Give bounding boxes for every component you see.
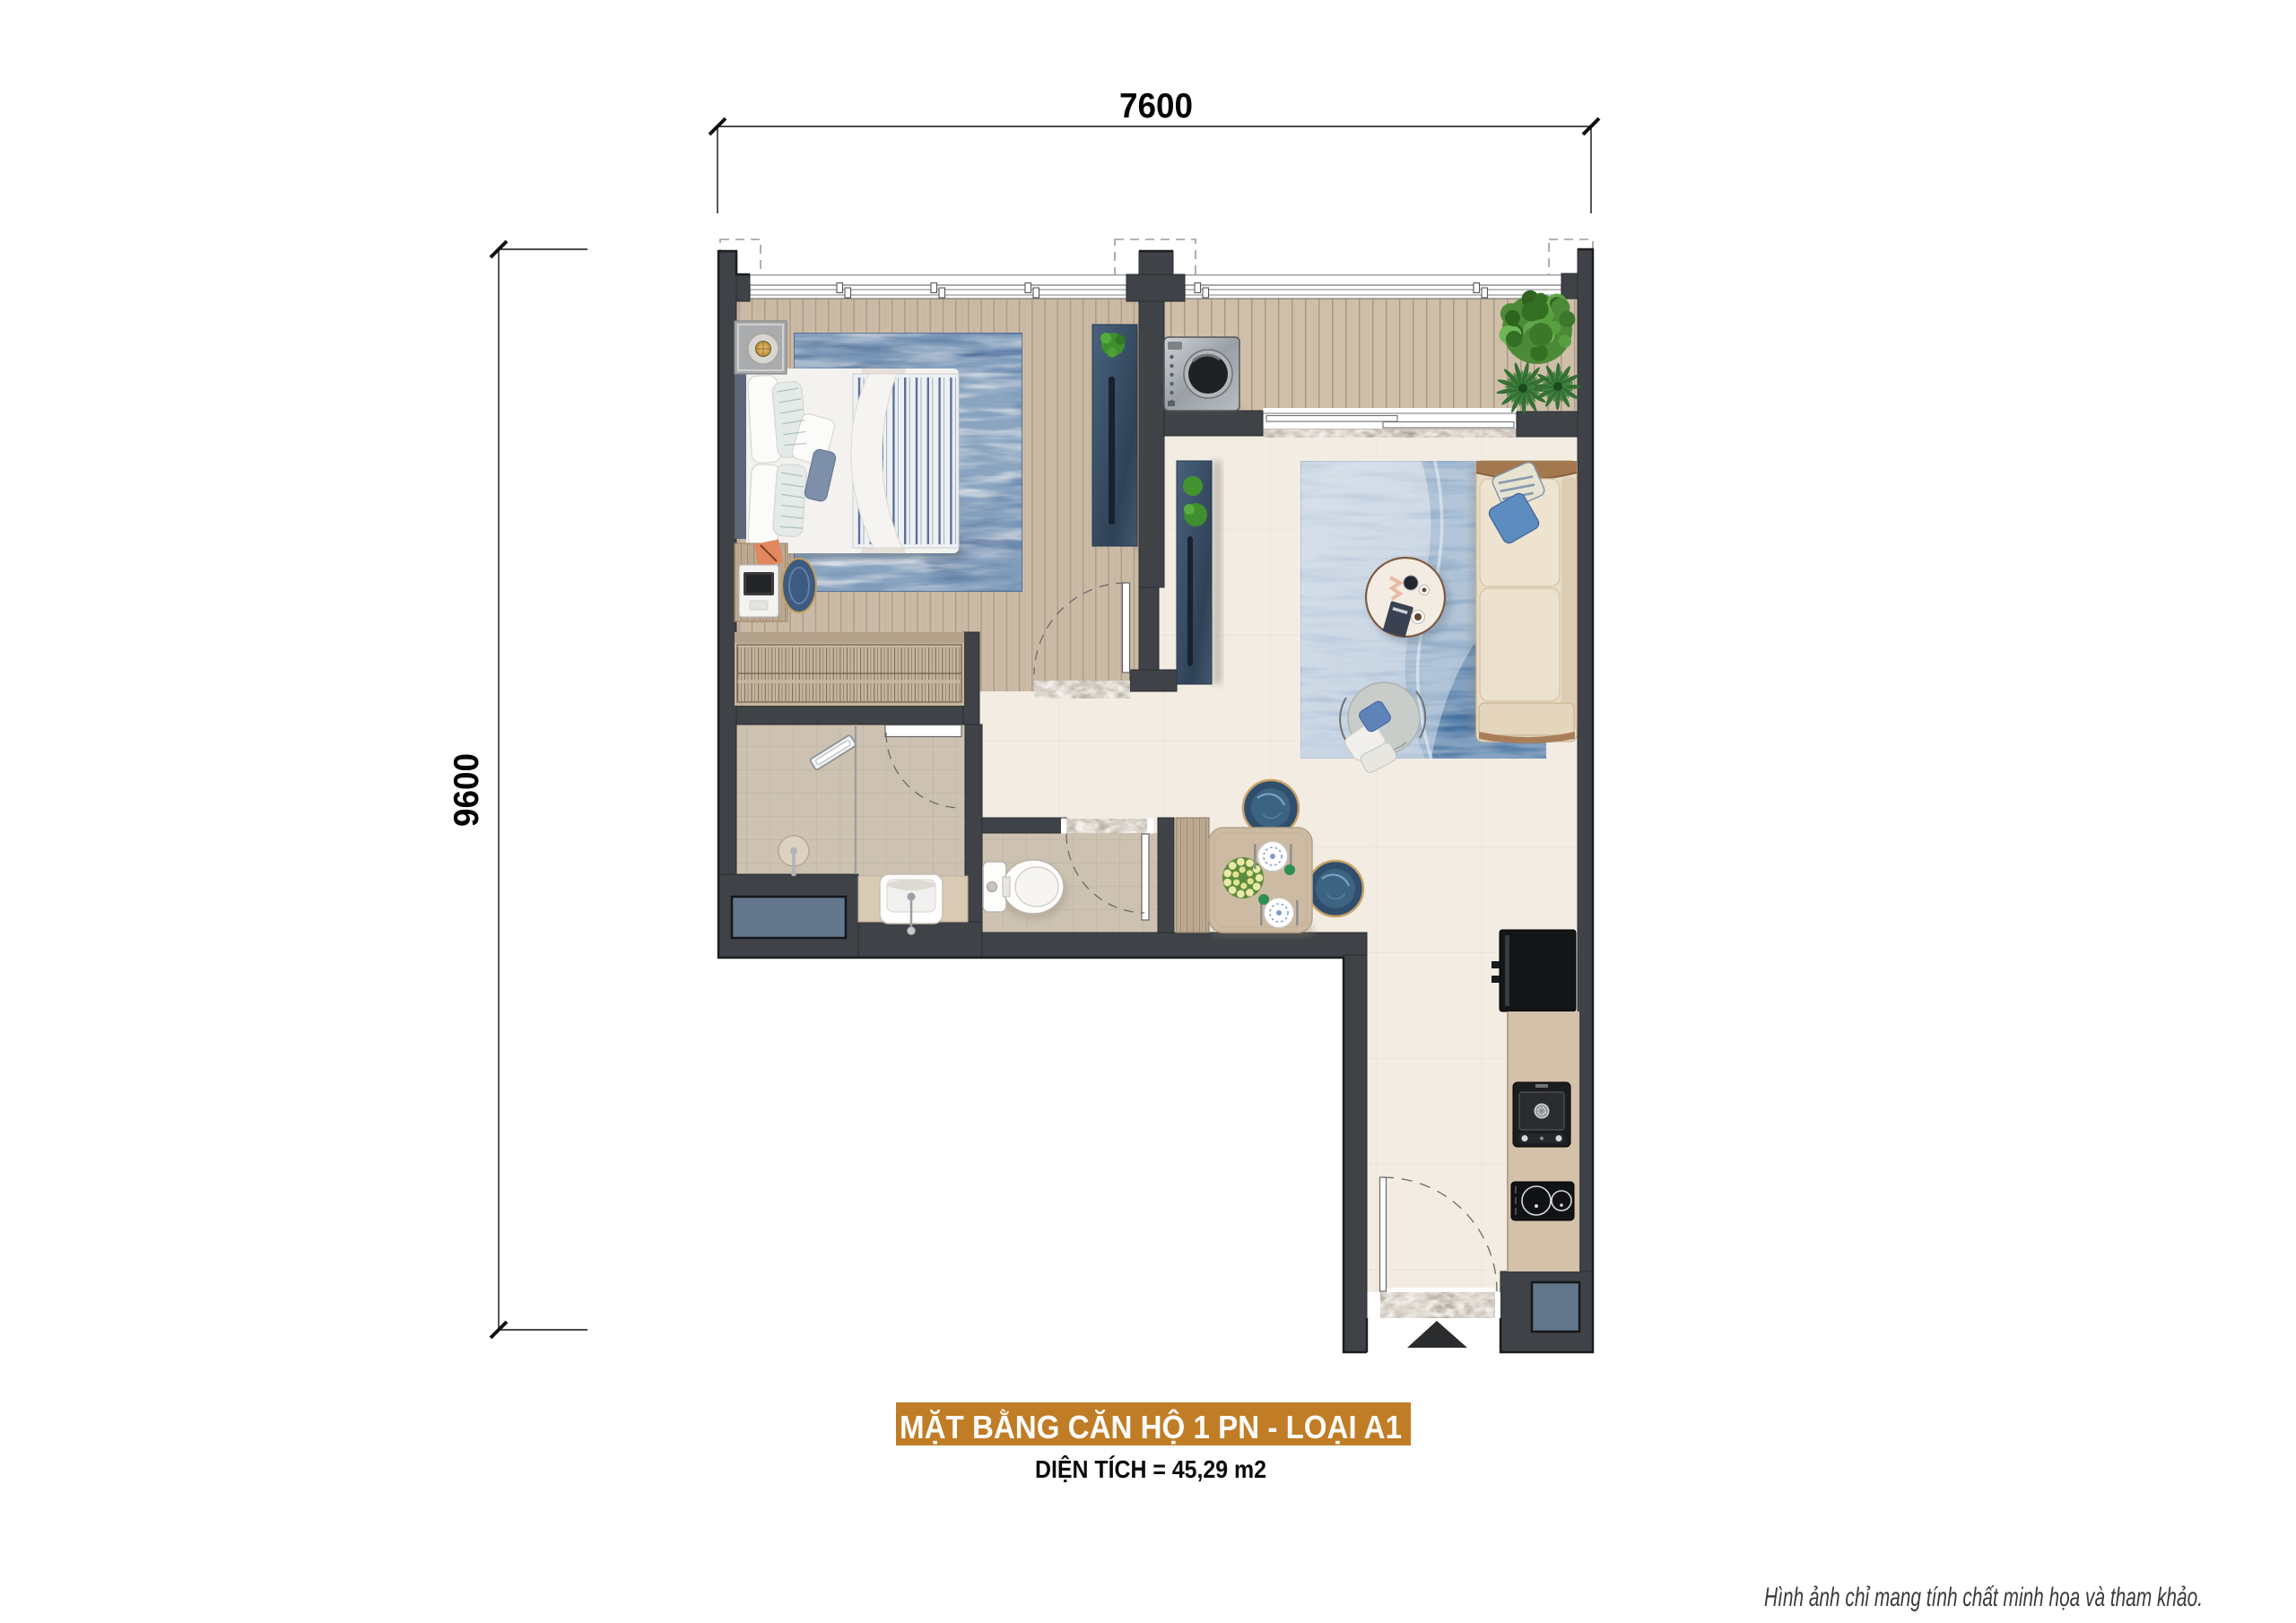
- svg-text:Hình ảnh chỉ mang tính chất mi: Hình ảnh chỉ mang tính chất minh họa và …: [1764, 1583, 2203, 1612]
- svg-text:DIỆN TÍCH = 45,29 m2: DIỆN TÍCH = 45,29 m2: [1035, 1455, 1266, 1483]
- svg-text:7600: 7600: [1119, 87, 1193, 126]
- svg-text:MẶT BẰNG CĂN HỘ 1 PN - LOẠI A1: MẶT BẰNG CĂN HỘ 1 PN - LOẠI A1: [900, 1408, 1402, 1445]
- svg-text:9600: 9600: [448, 753, 486, 827]
